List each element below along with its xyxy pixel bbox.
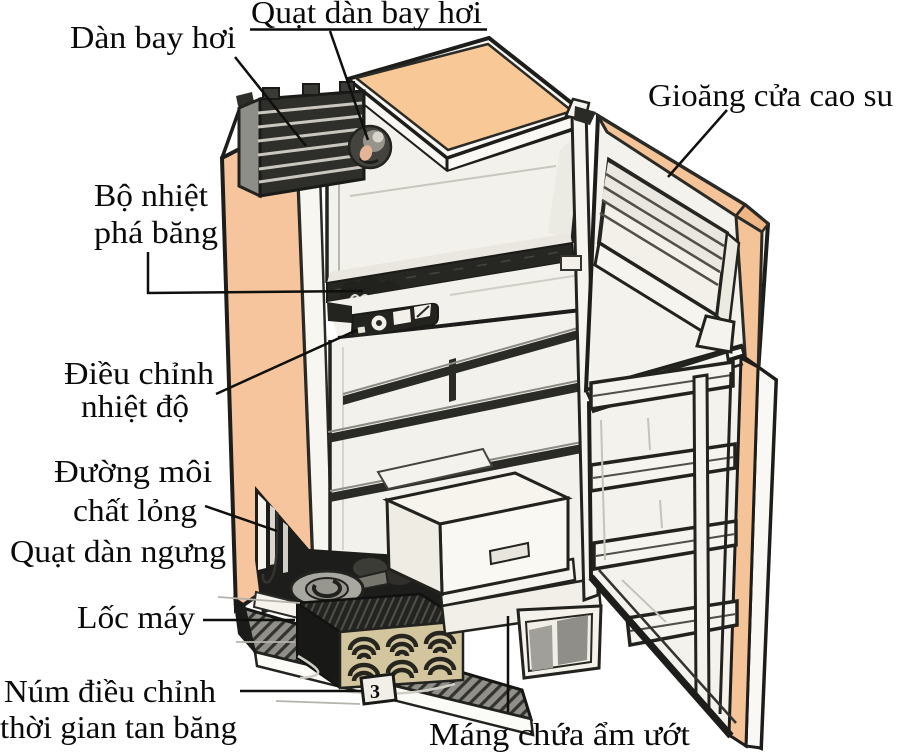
svg-text:Dàn bay hơi: Dàn bay hơi (70, 19, 236, 55)
svg-text:Máng chứa ẩm ướt: Máng chứa ẩm ướt (429, 716, 690, 752)
svg-text:Bộ nhiệt: Bộ nhiệt (94, 177, 208, 213)
svg-text:thời gian tan băng: thời gian tan băng (0, 709, 237, 745)
svg-text:Lốc máy: Lốc máy (77, 599, 195, 635)
svg-text:3: 3 (370, 681, 380, 703)
svg-text:chất lỏng: chất lỏng (73, 492, 197, 528)
svg-text:Gioăng cửa cao su: Gioăng cửa cao su (648, 77, 893, 113)
svg-text:Quạt dàn bay hơi: Quạt dàn bay hơi (251, 0, 482, 30)
svg-text:Điều chỉnh: Điều chỉnh (64, 355, 214, 391)
svg-text:nhiệt độ: nhiệt độ (81, 388, 189, 424)
svg-text:Núm điều chỉnh: Núm điều chỉnh (4, 673, 216, 709)
svg-text:Quạt dàn ngưng: Quạt dàn ngưng (10, 533, 226, 569)
svg-text:phá băng: phá băng (94, 214, 218, 250)
svg-text:Đường môi: Đường môi (54, 453, 212, 489)
